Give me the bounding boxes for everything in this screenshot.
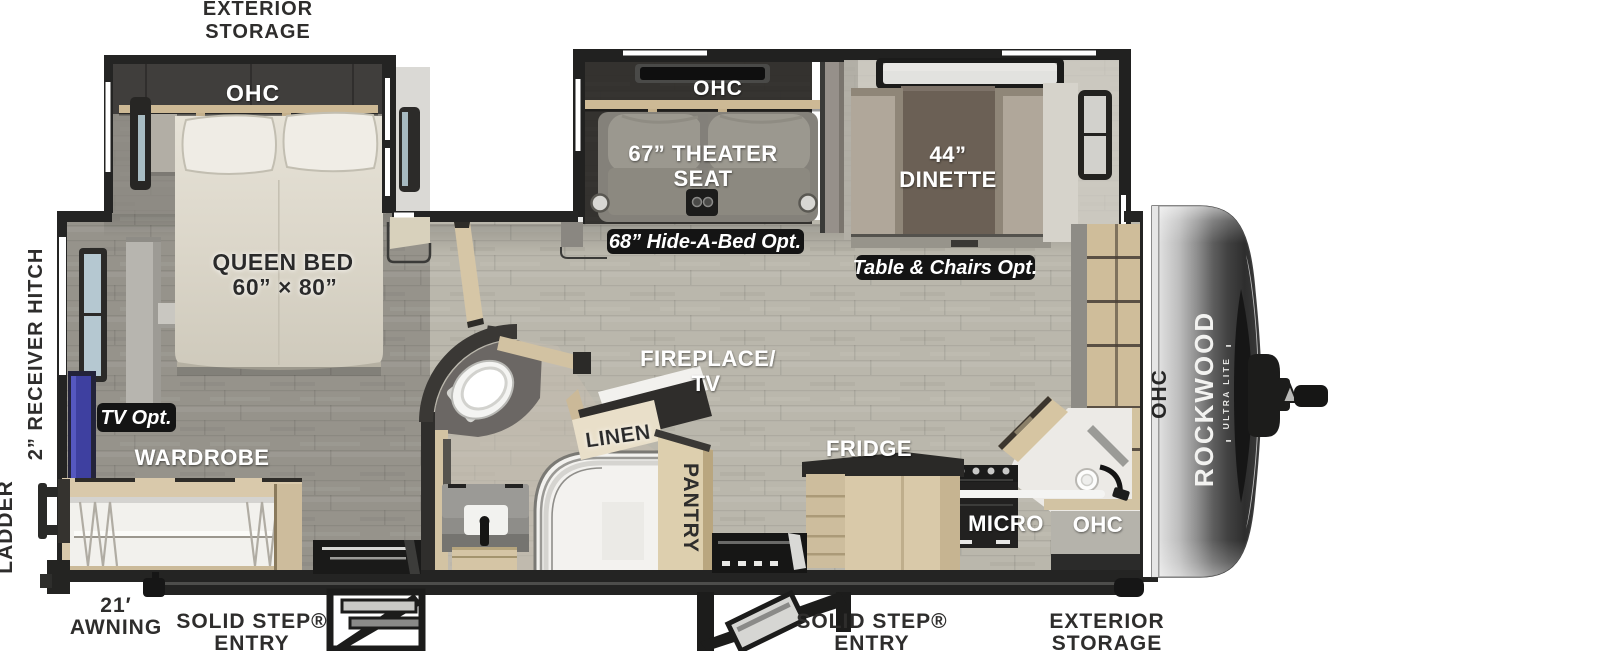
svg-text:21′: 21′ bbox=[100, 594, 131, 617]
svg-text:68” Hide-A-Bed Opt.: 68” Hide-A-Bed Opt. bbox=[609, 231, 801, 253]
svg-text:TV Opt.: TV Opt. bbox=[100, 407, 171, 429]
svg-text:OHC: OHC bbox=[1073, 512, 1123, 537]
svg-text:SOLID STEP®: SOLID STEP® bbox=[796, 610, 947, 633]
svg-text:TV: TV bbox=[691, 371, 720, 396]
svg-text:OHC: OHC bbox=[1148, 369, 1171, 419]
svg-text:ROCKWOOD: ROCKWOOD bbox=[1189, 311, 1219, 487]
svg-text:FRIDGE: FRIDGE bbox=[826, 436, 912, 461]
svg-text:44”: 44” bbox=[930, 142, 967, 167]
svg-text:ENTRY: ENTRY bbox=[834, 632, 909, 651]
svg-text:STORAGE: STORAGE bbox=[1052, 632, 1162, 651]
svg-text:60” × 80”: 60” × 80” bbox=[233, 274, 338, 300]
svg-text:67” THEATER: 67” THEATER bbox=[628, 141, 777, 166]
svg-text:QUEEN BED: QUEEN BED bbox=[212, 249, 353, 275]
svg-text:WARDROBE: WARDROBE bbox=[135, 445, 270, 470]
svg-text:FIREPLACE/: FIREPLACE/ bbox=[640, 346, 776, 371]
svg-text:AWNING: AWNING bbox=[70, 616, 162, 639]
svg-text:OHC: OHC bbox=[226, 80, 280, 106]
svg-text:LADDER: LADDER bbox=[0, 480, 17, 574]
svg-text:OHC: OHC bbox=[693, 77, 743, 100]
svg-text:DINETTE: DINETTE bbox=[899, 167, 997, 192]
svg-text:STORAGE: STORAGE bbox=[205, 21, 311, 43]
svg-text:PANTRY: PANTRY bbox=[679, 463, 702, 553]
svg-text:Table & Chairs Opt.: Table & Chairs Opt. bbox=[853, 257, 1038, 279]
svg-text:SEAT: SEAT bbox=[673, 166, 732, 191]
svg-text:EXTERIOR: EXTERIOR bbox=[203, 0, 313, 20]
svg-text:2” RECEIVER HITCH: 2” RECEIVER HITCH bbox=[25, 248, 47, 461]
svg-text:ULTRA LITE: ULTRA LITE bbox=[1221, 357, 1231, 430]
svg-text:EXTERIOR: EXTERIOR bbox=[1049, 610, 1164, 633]
svg-text:SOLID STEP®: SOLID STEP® bbox=[176, 610, 327, 633]
svg-text:MICRO: MICRO bbox=[968, 511, 1044, 536]
svg-text:ENTRY: ENTRY bbox=[214, 632, 289, 651]
